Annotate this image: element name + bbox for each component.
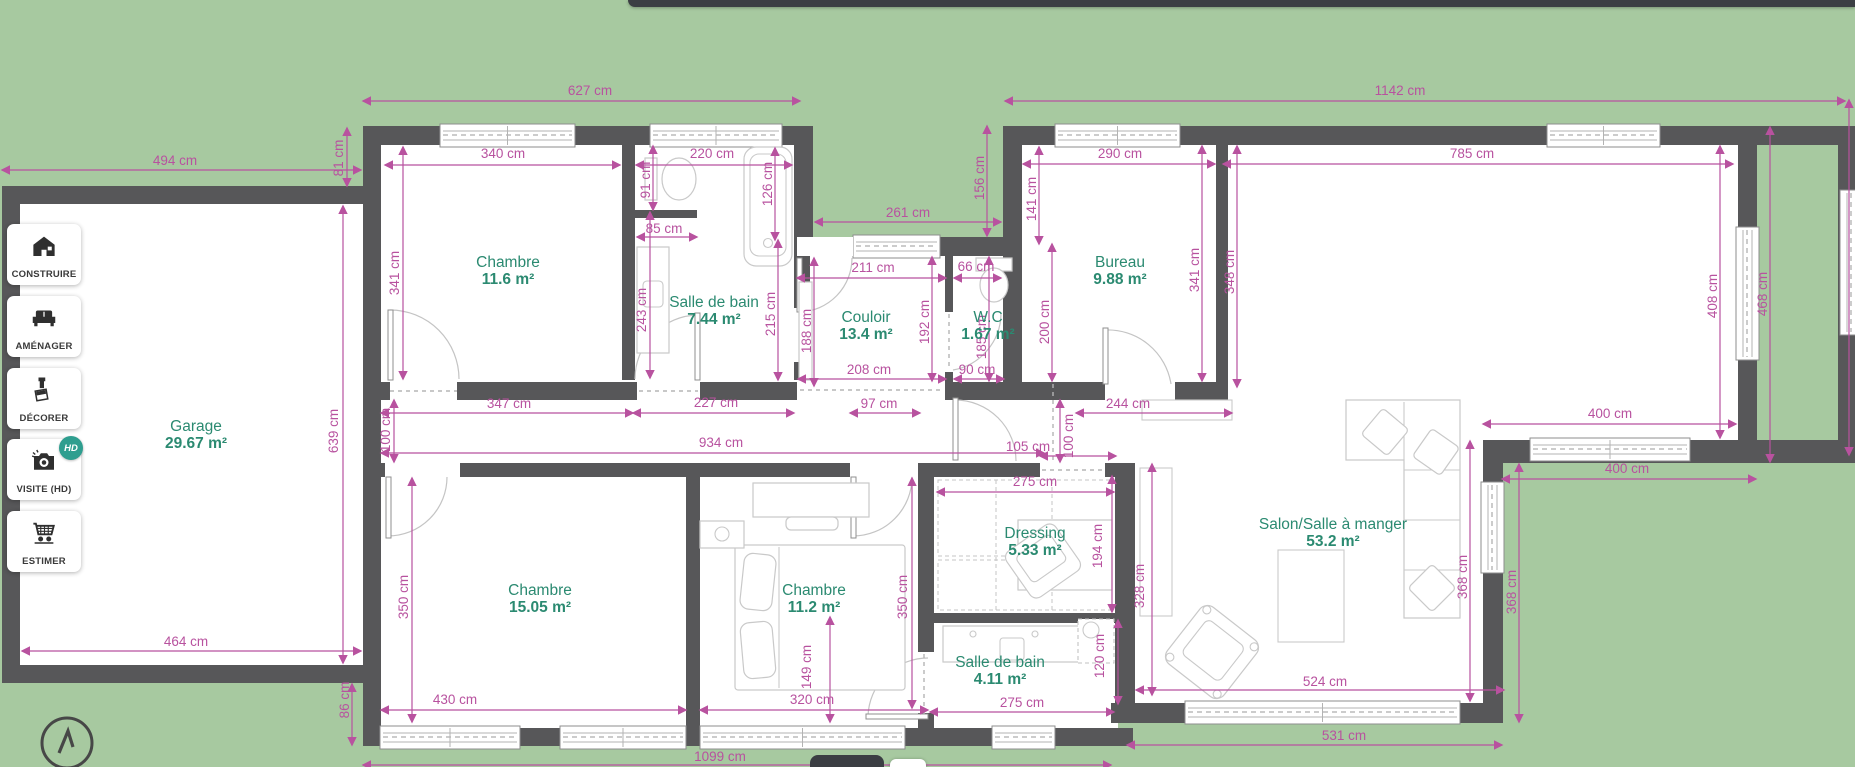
room-label-bureau: Bureau bbox=[1095, 254, 1145, 271]
floorplan-canvas[interactable]: 494 cm81 cm627 cm1142 cm464 cm639 cm86 c… bbox=[0, 0, 1855, 767]
dimension-label: 91 cm bbox=[638, 162, 653, 199]
dimension-label: 275 cm bbox=[1000, 695, 1044, 710]
bottom-toolbar-pill-light[interactable] bbox=[890, 759, 926, 767]
room-label-couloir: Couloir bbox=[841, 309, 890, 326]
dimension-label: 290 cm bbox=[1098, 146, 1142, 161]
sidebar-button-estimer[interactable]: ESTIMER bbox=[7, 511, 81, 572]
sidebar-button-construire[interactable]: CONSTRUIRE bbox=[7, 224, 81, 285]
dimension-label: 220 cm bbox=[690, 146, 734, 161]
room-area-salle-de-bain-1: 7.44 m² bbox=[687, 311, 740, 328]
dimension-label: 430 cm bbox=[433, 692, 477, 707]
dimension-label: 208 cm bbox=[847, 362, 891, 377]
dimension-label: 194 cm bbox=[1090, 524, 1105, 568]
top-toolbar-edge bbox=[628, 0, 1855, 7]
dimension-label: 81 cm bbox=[331, 140, 346, 177]
dimension-label: 347 cm bbox=[487, 396, 531, 411]
paint-roller-icon bbox=[29, 375, 59, 405]
room-area-garage: 29.67 m² bbox=[165, 435, 227, 452]
floorplan-svg[interactable]: 494 cm81 cm627 cm1142 cm464 cm639 cm86 c… bbox=[0, 0, 1855, 767]
sidebar-button-amenager[interactable]: AMÉNAGER bbox=[7, 296, 81, 357]
room-label-garage: Garage bbox=[170, 418, 222, 435]
dimension-label: 227 cm bbox=[694, 395, 738, 410]
room-label-chambre-1: Chambre bbox=[476, 254, 540, 271]
room-area-salle-de-bain-2: 4.11 m² bbox=[974, 671, 1027, 688]
dimension-label: 200 cm bbox=[1037, 300, 1052, 344]
north-arrow-icon bbox=[38, 714, 96, 767]
dimension-label: 934 cm bbox=[699, 435, 743, 450]
sidebar-button-visite-hd[interactable]: VISITE (HD) HD bbox=[7, 439, 81, 500]
dimension-label: 156 cm bbox=[972, 156, 987, 200]
dimension-label: 141 cm bbox=[1024, 177, 1039, 221]
dimension-label: 340 cm bbox=[481, 146, 525, 161]
dimension-label: 188 cm bbox=[799, 309, 814, 353]
dimension-label: 86 cm bbox=[337, 682, 352, 719]
room-label-salon-salle-a-manger: Salon/Salle à manger bbox=[1259, 516, 1407, 533]
dimension-label: 400 cm bbox=[1588, 406, 1632, 421]
dimension-label: 639 cm bbox=[326, 409, 341, 453]
cart-icon bbox=[29, 518, 59, 548]
room-area-chambre-2: 15.05 m² bbox=[509, 599, 571, 616]
sidebar-button-decorer[interactable]: DÉCORER bbox=[7, 368, 81, 429]
dimension-label: 97 cm bbox=[861, 396, 898, 411]
dimension-label: 85 cm bbox=[646, 221, 683, 236]
dimension-label: 105 cm bbox=[1006, 439, 1050, 454]
room-area-dressing: 5.33 m² bbox=[1008, 542, 1061, 559]
room-label-wc: W.C bbox=[973, 309, 1002, 326]
dimension-label: 1142 cm bbox=[1375, 83, 1426, 98]
dimension-label: 211 cm bbox=[851, 260, 894, 275]
dimension-label: 275 cm bbox=[1013, 474, 1057, 489]
dimension-label: 494 cm bbox=[153, 153, 197, 168]
dimension-label: 468 cm bbox=[1755, 272, 1770, 316]
dimension-label: 368 cm bbox=[1455, 555, 1470, 599]
sidebar-button-label: DÉCORER bbox=[20, 413, 69, 424]
room-label-salle-de-bain-2: Salle de bain bbox=[955, 654, 1045, 671]
room-area-couloir: 13.4 m² bbox=[839, 326, 892, 343]
bottom-toolbar-pill[interactable] bbox=[810, 755, 884, 767]
room-area-salon-salle-a-manger: 53.2 m² bbox=[1306, 533, 1359, 550]
dimension-label: 408 cm bbox=[1705, 274, 1720, 318]
room-area-chambre-1: 11.6 m² bbox=[482, 271, 535, 288]
dimension-label: 244 cm bbox=[1106, 396, 1150, 411]
house-icon bbox=[29, 231, 59, 261]
dimension-label: 464 cm bbox=[164, 634, 208, 649]
room-area-chambre-3: 11.2 m² bbox=[788, 599, 841, 616]
dimension-label: 341 cm bbox=[1187, 248, 1202, 292]
dimension-label: 320 cm bbox=[790, 692, 834, 707]
dimension-label: 215 cm bbox=[763, 292, 778, 336]
dimension-label: 328 cm bbox=[1132, 564, 1147, 608]
dimension-label: 350 cm bbox=[396, 575, 411, 619]
dimension-label: 243 cm bbox=[634, 288, 649, 332]
dimension-label: 90 cm bbox=[959, 362, 996, 377]
dimension-label: 192 cm bbox=[917, 300, 932, 344]
dimension-label: 524 cm bbox=[1303, 674, 1347, 689]
dimension-label: 100 cm bbox=[1061, 414, 1076, 458]
dimension-label: 100 cm bbox=[378, 408, 393, 452]
camera-icon bbox=[29, 446, 59, 476]
dimension-label: 126 cm bbox=[760, 162, 775, 206]
sidebar-button-label: ESTIMER bbox=[22, 556, 66, 567]
dimension-label: 341 cm bbox=[387, 251, 402, 295]
dimension-label: 120 cm bbox=[1092, 634, 1107, 678]
dimension-label: 350 cm bbox=[895, 575, 910, 619]
room-label-chambre-3: Chambre bbox=[782, 582, 846, 599]
dimension-label: 348 cm bbox=[1222, 250, 1237, 294]
sidebar-button-label: AMÉNAGER bbox=[15, 341, 72, 352]
dimension-label: 785 cm bbox=[1450, 146, 1494, 161]
dimension-label: 149 cm bbox=[799, 645, 814, 689]
dimension-label: 1099 cm bbox=[694, 749, 746, 764]
dimension-label: 400 cm bbox=[1605, 461, 1649, 476]
dimension-label: 627 cm bbox=[568, 83, 612, 98]
dimension-label: 368 cm bbox=[1504, 570, 1519, 614]
hd-badge: HD bbox=[59, 436, 83, 460]
room-label-dressing: Dressing bbox=[1004, 525, 1065, 542]
room-area-wc: 1.67 m² bbox=[961, 326, 1014, 343]
sidebar-button-label: VISITE (HD) bbox=[17, 484, 72, 495]
sofa-icon bbox=[29, 303, 59, 333]
sidebar-button-label: CONSTRUIRE bbox=[12, 269, 77, 280]
room-label-salle-de-bain-1: Salle de bain bbox=[669, 294, 759, 311]
dimension-label: 531 cm bbox=[1322, 728, 1366, 743]
room-label-chambre-2: Chambre bbox=[508, 582, 572, 599]
room-area-bureau: 9.88 m² bbox=[1093, 271, 1146, 288]
compass-rotate-control[interactable] bbox=[38, 714, 96, 767]
dimension-label: 261 cm bbox=[886, 205, 930, 220]
